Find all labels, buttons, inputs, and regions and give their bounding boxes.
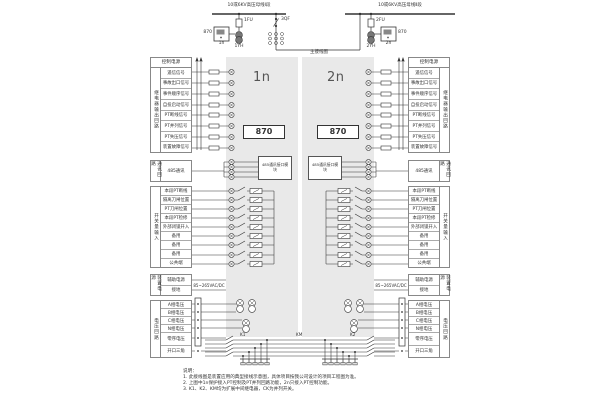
fuse-2fu-label: 2FU xyxy=(376,19,385,24)
binary-row: PT刀闸位置 xyxy=(409,205,439,214)
voltage-row: B相电压 xyxy=(409,309,439,317)
binary-row: 备用 xyxy=(409,250,439,259)
model-870-box-right: 870 xyxy=(317,125,359,139)
signal-row: 遥信信号 xyxy=(409,68,439,79)
voltage-row: C相电压 xyxy=(161,317,191,325)
voltage-row: A相电压 xyxy=(409,301,439,309)
signal-row: 事件顺序信号 xyxy=(161,89,191,100)
signal-row: PT断线信号 xyxy=(161,111,191,122)
signal-row: 装置故障信号 xyxy=(409,142,439,152)
power-row: 辅助电源 xyxy=(161,275,191,286)
device-870-right-label: 870 xyxy=(398,31,412,36)
notes-block: 说明： 1. 此接线图是装置应用的典型接线示意图，具体项目按我公司设计的项目工程… xyxy=(183,369,443,393)
signal-row: PT失压信号 xyxy=(409,132,439,143)
voltage-row: B相电压 xyxy=(161,309,191,317)
left-comm-table: 通讯回路 485通讯 xyxy=(150,160,192,182)
binary-row: 备用 xyxy=(409,232,439,241)
comm-row: 485通讯 xyxy=(161,161,191,181)
voltage-row: 零序电压 xyxy=(409,333,439,345)
voltage-row: N相电压 xyxy=(161,325,191,333)
parallel-bus-lines xyxy=(205,336,395,356)
unit-2n-small-label: 2n xyxy=(382,42,395,47)
binary-input-vertical-label: 开关量输入 xyxy=(151,187,161,267)
voltage-row: 开口三角 xyxy=(161,346,191,357)
pt-2yh-label: 2YH xyxy=(363,45,379,50)
voltage-vertical-label: 电压回路 xyxy=(151,301,161,357)
binary-row: 备用 xyxy=(161,241,191,250)
unit-2n-label: 2n xyxy=(327,70,345,85)
voltage-vertical-label: 电压回路 xyxy=(439,301,449,357)
binary-row: 备用 xyxy=(161,232,191,241)
terminal-strip-left xyxy=(195,298,201,352)
fuse-1fu-label: 1FU xyxy=(244,19,253,24)
binary-row: PT刀闸位置 xyxy=(161,205,191,214)
binary-row: 隔离刀闸位置 xyxy=(409,196,439,205)
binary-row: 本段PT断线 xyxy=(161,187,191,196)
right-control-signal-table: 控制电源 继电器输出回路 遥信信号 事故出口信号 事件顺序信号 自投启动信号 P… xyxy=(408,57,450,153)
voltage-row: C相电压 xyxy=(409,317,439,325)
bus1-label: 10或6KV高压母线Ⅰ段 xyxy=(204,4,294,9)
signal-row: 事件顺序信号 xyxy=(409,89,439,100)
binary-row: 本段PT检修 xyxy=(409,214,439,223)
signal-row: 装置故障信号 xyxy=(161,142,191,152)
power-range-note-left: 85~265VAC/DC xyxy=(192,283,226,288)
unit-1n-small-label: 1n xyxy=(215,42,228,47)
voltage-row: 开口三角 xyxy=(409,346,439,357)
voltage-row: A相电压 xyxy=(161,301,191,309)
binary-row: 公共端 xyxy=(161,259,191,267)
binary-row: 公共端 xyxy=(409,259,439,267)
device-block-right xyxy=(302,57,374,337)
left-power-table: 装置电源 辅助电源 接地 xyxy=(150,274,192,296)
control-power-header: 控制电源 xyxy=(151,58,191,68)
signal-row: 遥信信号 xyxy=(161,68,191,79)
comm-module-box-right: 485通讯接口模块 xyxy=(308,156,342,180)
binary-row: 外部闭锁开入 xyxy=(409,223,439,232)
pt-symbol-1yh xyxy=(236,32,243,44)
schematic-page: 10或6KV高压母线Ⅰ段 10或6KV高压母线Ⅱ段 870 1n 1FU 1YH… xyxy=(0,0,600,400)
binary-row: 隔离刀闸位置 xyxy=(161,196,191,205)
binary-row: 本段PT检修 xyxy=(161,214,191,223)
left-binary-input-table: 开关量输入 本段PT断线 隔离刀闸位置 PT刀闸位置 本段PT检修 外部闭锁开入… xyxy=(150,186,192,268)
pt-symbol-2yh xyxy=(368,32,375,44)
power-vertical-label: 装置电源 xyxy=(439,275,449,295)
comm-vertical-label: 通讯回路 xyxy=(151,161,161,181)
terminal-strip-right xyxy=(399,298,405,352)
binary-row: 备用 xyxy=(161,250,191,259)
schematic-drawing xyxy=(0,0,600,400)
device-front-view-left xyxy=(214,27,229,41)
unit-1n-label: 1n xyxy=(253,70,271,85)
signal-row: PT并列信号 xyxy=(161,121,191,132)
right-power-table: 装置电源 辅助电源 接地 xyxy=(408,274,450,296)
relay-k1-label: K1 xyxy=(240,332,245,337)
right-comm-table: 通讯回路 485通讯 xyxy=(408,160,450,182)
main-wiring-label: 主接线图 xyxy=(299,51,339,56)
left-voltage-table: 电压回路 A相电压 B相电压 C相电压 N相电压 零序电压 开口三角 xyxy=(150,300,192,358)
control-bus-right xyxy=(397,57,404,150)
junction-dots xyxy=(238,13,372,27)
signal-row: PT失压信号 xyxy=(161,132,191,143)
binary-input-symbols xyxy=(229,187,371,267)
signal-row: 事故出口信号 xyxy=(409,79,439,90)
binary-input-vertical-label: 开关量输入 xyxy=(439,187,449,267)
signal-row: PT并列信号 xyxy=(409,121,439,132)
voltage-row: N相电压 xyxy=(409,325,439,333)
control-power-header: 控制电源 xyxy=(409,58,449,68)
binary-row: 外部闭锁开入 xyxy=(161,223,191,232)
device-870-left-label: 870 xyxy=(198,31,212,36)
relay-k2-label: K2 xyxy=(350,332,355,337)
comm-vertical-label: 通讯回路 xyxy=(439,161,449,181)
note-item: 3. K1、K2、KM均为扩展中间继电器，CK为并列开关。 xyxy=(183,387,443,393)
pt-1yh-label: 1YH xyxy=(231,45,247,50)
right-voltage-table: 电压回路 A相电压 B相电压 C相电压 N相电压 零序电压 开口三角 xyxy=(408,300,450,358)
device-block-left xyxy=(226,57,298,337)
comm-module-box-left: 485通讯接口模块 xyxy=(258,156,292,180)
control-bus-left xyxy=(195,57,202,150)
comm-row: 485通讯 xyxy=(409,161,439,181)
breaker-3qf-label: 3QF xyxy=(281,18,290,23)
relay-output-vertical-label: 继电器输出回路 xyxy=(151,68,161,152)
power-row: 接地 xyxy=(161,286,191,296)
signal-row: 自投启动信号 xyxy=(409,100,439,111)
binary-row: 备用 xyxy=(409,241,439,250)
device-front-view-right xyxy=(381,27,396,41)
left-control-signal-table: 控制电源 继电器输出回路 遥信信号 事故出口信号 事件顺序信号 自投启动信号 P… xyxy=(150,57,192,153)
bus2-label: 10或6KV高压母线Ⅱ段 xyxy=(355,4,445,9)
relay-km-label: KM xyxy=(296,332,302,337)
right-binary-input-table: 开关量输入 本段PT断线 隔离刀闸位置 PT刀闸位置 本段PT检修 外部闭锁开入… xyxy=(408,186,450,268)
model-870-box-left: 870 xyxy=(243,125,285,139)
power-row: 接地 xyxy=(409,286,439,296)
signal-row: 自投启动信号 xyxy=(161,100,191,111)
binary-row: 本段PT断线 xyxy=(409,187,439,196)
relay-output-vertical-label: 继电器输出回路 xyxy=(439,68,449,152)
voltage-row: 零序电压 xyxy=(161,333,191,345)
signal-row: 事故出口信号 xyxy=(161,79,191,90)
bottom-terminals xyxy=(240,359,358,365)
power-range-note-right: 85~265VAC/DC xyxy=(374,283,408,288)
power-vertical-label: 装置电源 xyxy=(151,275,161,295)
power-row: 辅助电源 xyxy=(409,275,439,286)
signal-row: PT断线信号 xyxy=(409,111,439,122)
